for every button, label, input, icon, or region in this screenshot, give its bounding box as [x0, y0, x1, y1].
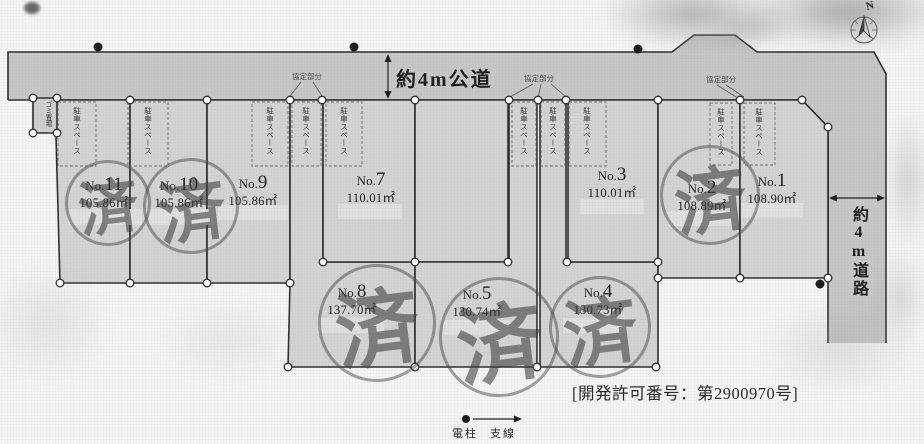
utility-pole-dot	[816, 280, 825, 289]
garbage-area-label: ゴミ置場	[42, 101, 52, 131]
lot-area-value: 110.01㎡	[588, 186, 637, 200]
parking-label-3: 駐車スペース	[583, 107, 591, 163]
lot-3-label: No.3 110.01㎡	[588, 164, 637, 200]
foliage-shadow	[884, 110, 924, 250]
boundary-node	[654, 274, 662, 282]
boundary-node	[534, 96, 542, 104]
boundary-node	[126, 96, 134, 104]
lot-no-digit: 1	[777, 170, 787, 191]
parking-label-4: 駐車スペース	[549, 107, 557, 163]
lot-no-prefix: No.	[758, 174, 777, 189]
lot-no-prefix: No.	[239, 176, 258, 191]
boundary-node	[318, 96, 326, 104]
top-road-label: 約4m公道	[396, 63, 493, 92]
lot-no-digit: 3	[617, 164, 627, 185]
lot-no-prefix: No.	[357, 173, 376, 188]
sold-stamp-char: 済	[449, 270, 550, 405]
boundary-node	[504, 258, 512, 266]
agreement-label: 協定部分	[524, 73, 554, 84]
boundary-node	[29, 129, 37, 137]
sold-stamp-char: 済	[668, 139, 752, 252]
parking-label-5: 駐車スペース	[520, 107, 528, 163]
parking-label-11: 駐車スペース	[73, 107, 81, 163]
parking-label-1: 駐車スペース	[755, 108, 763, 164]
boundary-node	[203, 279, 211, 287]
lot-area-value: 110.01㎡	[347, 191, 396, 205]
utility-pole-dot	[350, 43, 359, 52]
agreement-label: 協定部分	[706, 74, 736, 85]
parking-label-10: 駐車スペース	[144, 107, 152, 163]
legend-pole-label: 電柱	[452, 425, 478, 441]
boundary-node	[562, 96, 570, 104]
boundary-node	[824, 123, 832, 131]
legend-pole-dot	[462, 415, 470, 423]
boundary-node	[53, 94, 61, 102]
boundary-node	[505, 96, 513, 104]
lot-no-digit: 7	[376, 169, 386, 190]
boundary-node	[286, 96, 294, 104]
foliage-shadow	[160, 300, 300, 380]
parking-label-8: 駐車スペース	[302, 107, 310, 163]
sold-stamp-char: 済	[557, 269, 643, 384]
lot-7-band	[338, 204, 402, 219]
boundary-node	[654, 96, 662, 104]
utility-pole-dot	[634, 45, 643, 54]
lot-no-digit: 9	[258, 172, 268, 193]
lot-7-label: No.7 110.01㎡	[347, 169, 396, 205]
boundary-node	[286, 279, 294, 287]
sold-stamp-char: 済	[151, 153, 231, 260]
foliage-shadow	[702, 8, 797, 50]
boundary-node	[654, 258, 662, 266]
boundary-node	[203, 96, 211, 104]
sold-stamp-char: 済	[73, 156, 143, 250]
boundary-node	[798, 96, 806, 104]
boundary-node	[736, 96, 744, 104]
parking-label-7: 駐車スペース	[340, 107, 348, 163]
utility-pole-dot	[94, 43, 103, 52]
right-road-label: 約4m道路	[846, 206, 870, 306]
sold-stamp-char: 済	[328, 258, 426, 388]
boundary-node	[563, 258, 571, 266]
lot-6-boundary	[415, 100, 508, 262]
legend-wire-label: 支線	[490, 425, 516, 441]
boundary-node	[319, 258, 327, 266]
development-permit-text: [開発許可番号：第2900970号]	[572, 380, 798, 404]
boundary-node	[126, 279, 134, 287]
lot-no-prefix: No.	[598, 168, 617, 183]
legend-wire-arrowhead	[514, 416, 522, 423]
boundary-node	[411, 258, 419, 266]
boundary-node	[652, 363, 660, 371]
legend-glyphs	[462, 415, 522, 423]
scan-mark	[24, 2, 40, 14]
boundary-node	[736, 274, 744, 282]
parking-label-9: 駐車スペース	[266, 107, 274, 163]
boundary-node	[29, 94, 37, 102]
plot-map: 約4m公道 約4m道路 協定部分 協定部分 協定部分 ゴミ置場 駐車スペース 駐…	[0, 0, 924, 444]
agreement-label: 協定部分	[292, 71, 322, 82]
boundary-node	[411, 96, 419, 104]
boundary-node	[824, 274, 832, 282]
boundary-node	[53, 129, 61, 137]
lot-3-band	[580, 199, 644, 214]
